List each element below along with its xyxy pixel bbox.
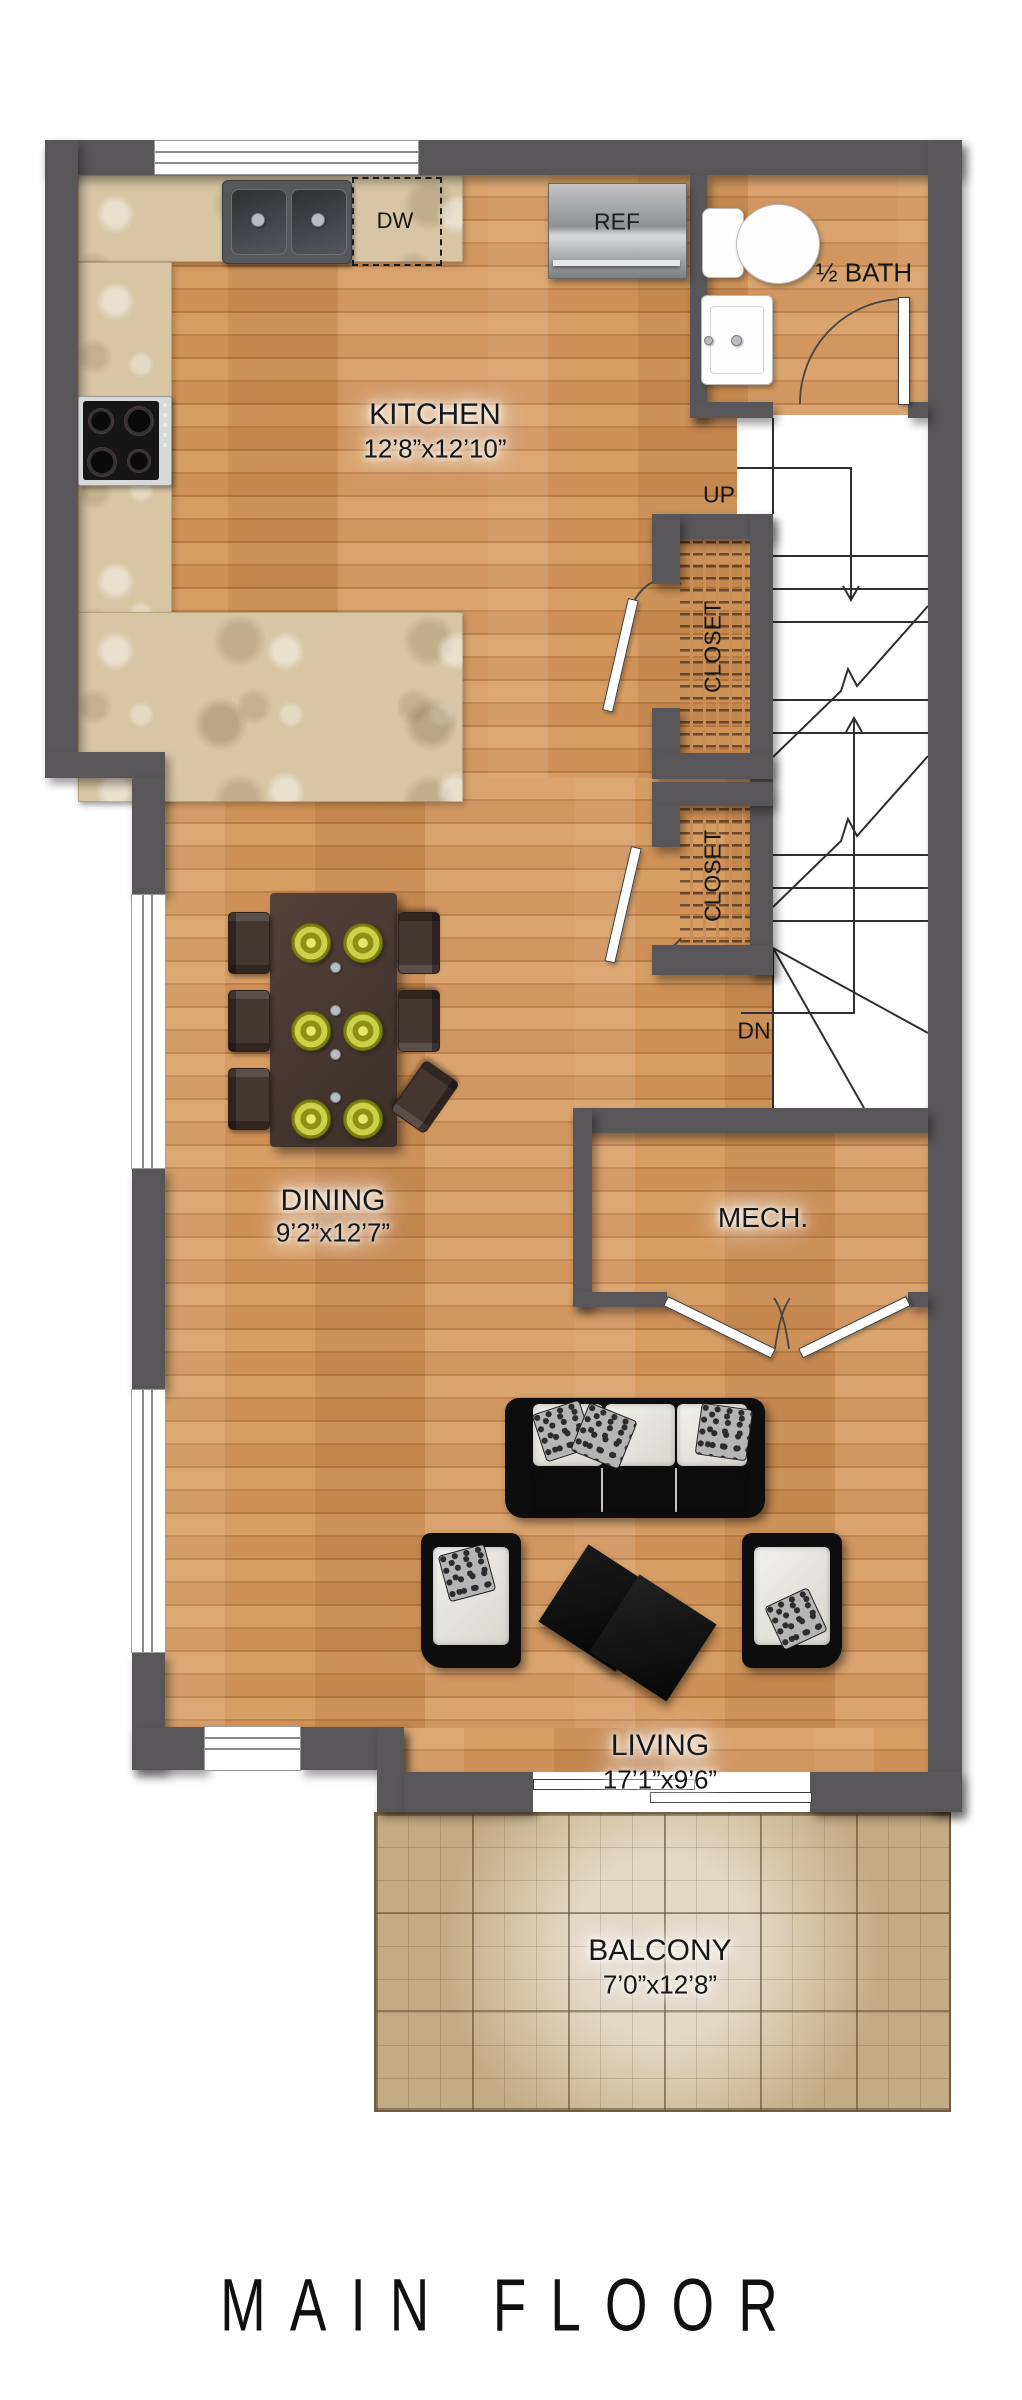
dining-chair-left-3 [228,1068,270,1130]
burner-4 [127,449,151,473]
place-setting-1 [291,923,331,963]
refrigerator-label: REF [594,209,640,236]
wall-closet2-stub [652,806,680,847]
wall-left-b [132,1168,165,1390]
wall-bath-bottom-b [908,402,928,418]
dining-label: DINING [281,1184,386,1218]
stairs-up-label: UP [703,482,735,509]
dining-chair-right-1 [398,912,440,974]
place-setting-6 [343,1099,383,1139]
toilet-bowl [736,204,820,284]
bath-sink [701,295,773,385]
kitchen-sink [222,180,352,264]
sofa-pillow-3 [695,1403,754,1462]
wall-southwest-a [132,1727,205,1770]
wall-left-step [45,752,165,778]
place-setting-4 [343,1011,383,1051]
table-decor-4 [330,1092,341,1103]
kitchen-dims: 12’8”x12’10” [363,434,506,465]
place-setting-3 [291,1011,331,1051]
floor-plan-page: KITCHEN 12’8”x12’10” ½ BATH DW REF UP DN… [0,0,1022,2400]
burner-3 [87,447,117,477]
bath-sink-drain [731,335,742,346]
cooktop-knobs [163,403,167,449]
bath-door-leaf [898,297,910,405]
burner-2 [124,406,154,436]
wall-closet2-top [652,782,773,806]
living-label: LIVING [611,1729,709,1763]
wall-closet1-stub-b [652,708,680,753]
window-living-south [205,1727,300,1770]
wall-closet1-bottom [652,753,773,779]
kitchen-label: KITCHEN [369,398,501,432]
sofa [505,1398,765,1518]
window-dining-west [132,895,165,1168]
closet1-label: CLOSET [700,601,727,693]
dining-chair-left-2 [228,990,270,1052]
dining-chair-right-2 [398,990,440,1052]
stairs-down-label: DN [737,1018,770,1045]
armchair-right [742,1533,842,1668]
plan-title: MAIN FLOOR [220,2263,802,2348]
sofa-seat [531,1468,749,1512]
table-decor-1 [330,962,341,973]
wall-mech-bottom-b [908,1292,928,1307]
wall-mech-left [573,1108,592,1307]
wall-south-jog [377,1727,404,1812]
closet2-label: CLOSET [700,830,727,922]
sink-drain-right [311,213,325,227]
balcony-dims: 7’0”x12’8” [603,1970,717,2001]
sink-drain-left [251,213,265,227]
cooktop [78,396,172,486]
window-kitchen-north [155,141,418,174]
dishwasher-label: DW [377,208,414,234]
wall-left-a [132,778,165,895]
wall-south-a [404,1772,533,1812]
wall-right [928,140,962,1812]
bath-label: ½ BATH [816,258,912,289]
place-setting-2 [343,923,383,963]
dining-dims: 9’2”x12’7” [276,1218,390,1249]
wall-mech-top [573,1108,928,1133]
balcony-label: BALCONY [588,1934,731,1968]
wall-south-b [810,1772,962,1812]
wall-closet2-bottom [652,945,773,975]
wall-left-upper [45,140,78,752]
bath-sink-faucet [704,336,713,345]
dining-chair-left-1 [228,912,270,974]
refrigerator-handle [553,260,680,266]
wall-mech-bottom-a [573,1292,667,1307]
wall-closet-right [750,514,773,975]
table-decor-3 [330,1049,341,1060]
wall-bath-bottom-a [690,402,773,418]
table-decor-2 [330,1005,341,1016]
living-dims: 17’1”x9’6” [603,1765,717,1796]
wall-closet1-stub-a [652,514,680,584]
armchair-left [421,1533,521,1668]
burner-1 [88,408,114,434]
mech-label: MECH. [718,1202,808,1234]
window-living-west [132,1390,165,1652]
place-setting-5 [291,1099,331,1139]
